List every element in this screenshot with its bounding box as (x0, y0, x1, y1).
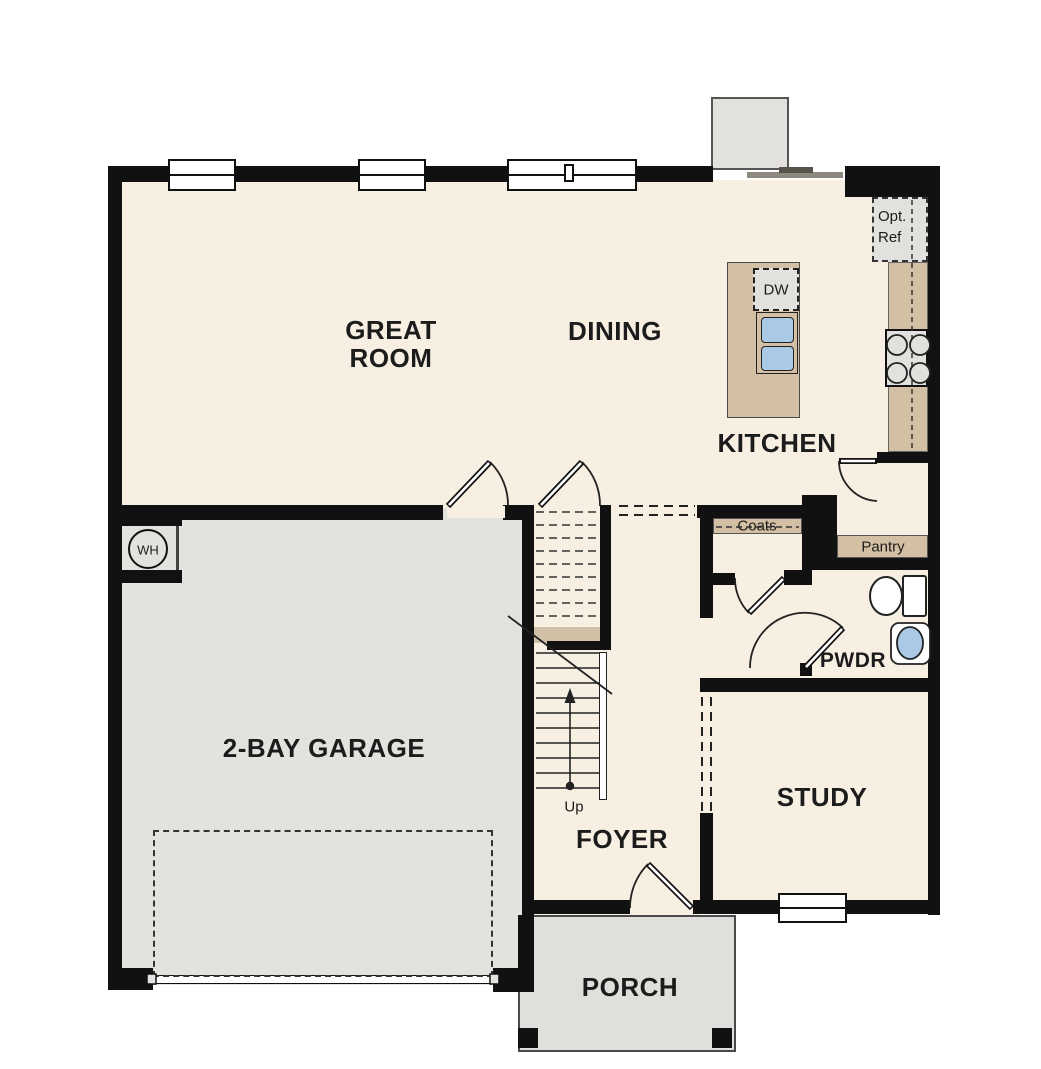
wall-top-right-block (845, 166, 940, 197)
wall-right (928, 197, 940, 915)
window-dining-left (358, 159, 426, 191)
garage-label: 2-BAY GARAGE (223, 734, 426, 762)
wall-greatroom-garage-left (108, 505, 443, 520)
optional-refrigerator-label: Opt. Ref (878, 206, 906, 248)
wall-foyer-bottom (522, 900, 630, 914)
window-study (778, 893, 847, 923)
wall-wh-alcove-bottom (108, 570, 182, 583)
wall-stair-landing (547, 641, 611, 650)
chimney (711, 97, 789, 170)
wall-study-top (700, 678, 940, 692)
wall-stair-left (522, 505, 534, 915)
window-pane (780, 907, 845, 909)
wall-study-left (700, 813, 713, 914)
study-label: STUDY (777, 783, 868, 811)
porch-post-right (712, 1028, 732, 1048)
water-heater-label: WH (137, 543, 159, 558)
stove-cooktop (885, 329, 928, 387)
great-room-label-line1: GREAT (345, 316, 437, 344)
great-room-label: GREAT ROOM (345, 316, 437, 372)
window-great-room (168, 159, 236, 191)
window-dining-right (507, 159, 637, 191)
dining-label: DINING (568, 317, 662, 345)
window-pane (170, 174, 234, 176)
stairs-up-label: Up (564, 799, 583, 816)
wall-porch-left (518, 915, 534, 992)
foyer-label: FOYER (576, 825, 668, 853)
garage-parking-outline (153, 830, 493, 977)
wall-coats-stub-left (700, 573, 735, 585)
wall-coats-top (697, 505, 812, 518)
great-room-label-line2: ROOM (345, 344, 437, 372)
sink-basin-bottom (761, 346, 794, 371)
powder-room-label: PWDR (820, 647, 886, 675)
wall-garage-stub-left (108, 968, 153, 990)
wall-stair-right (600, 505, 611, 648)
wall-powder-door-stub (800, 663, 812, 676)
kitchen-label: KITCHEN (717, 429, 836, 457)
window-pane (509, 174, 635, 176)
wall-pantry-top (877, 452, 940, 463)
floor-right-wing (700, 420, 928, 900)
hearth-ledge-dark (779, 167, 813, 173)
porch-post-left (518, 1028, 538, 1048)
floor-plan: GREAT ROOM DINING KITCHEN 2-BAY GARAGE F… (0, 0, 1041, 1069)
sink-basin-top (761, 317, 794, 343)
opt-ref-label-line2: Ref (878, 227, 906, 248)
coats-closet-label: Coats (737, 518, 776, 535)
wall-wh-alcove-top (108, 520, 182, 526)
wh-alcove-edge (176, 526, 179, 570)
dishwasher-label: DW (764, 282, 789, 299)
opt-ref-label-line1: Opt. (878, 206, 906, 227)
porch-label: PORCH (582, 973, 678, 1001)
wall-hall-right (700, 505, 713, 618)
garage-door-threshold (447, 506, 505, 518)
wall-coats-stub-right (784, 570, 812, 585)
window-pane (360, 174, 424, 176)
stair-rail (599, 652, 607, 800)
wall-powder-top (812, 558, 940, 570)
pantry-label: Pantry (861, 539, 904, 556)
